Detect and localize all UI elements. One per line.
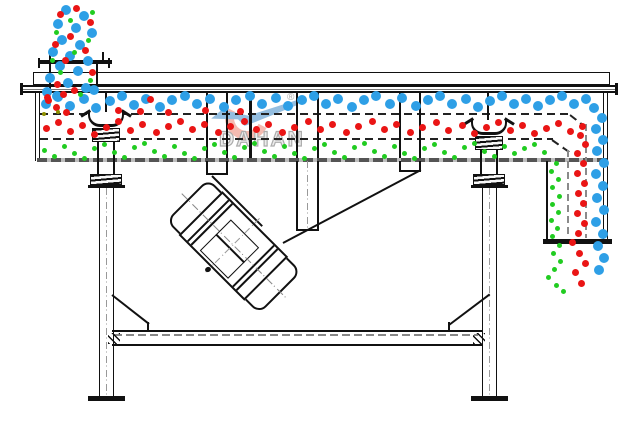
particle-red bbox=[241, 118, 248, 125]
particle-red bbox=[89, 69, 96, 76]
particle-green bbox=[172, 144, 177, 149]
particle-red bbox=[52, 41, 59, 48]
particle-green bbox=[322, 142, 327, 147]
particle-blue bbox=[283, 101, 293, 111]
particle-red bbox=[71, 87, 78, 94]
particle-red bbox=[575, 230, 582, 237]
particle-green bbox=[492, 154, 497, 159]
particle-green bbox=[402, 151, 407, 156]
particle-blue bbox=[205, 94, 215, 104]
particle-green bbox=[502, 144, 507, 149]
particle-blue bbox=[599, 253, 609, 263]
particle-red bbox=[63, 109, 70, 116]
particle-red bbox=[483, 124, 490, 131]
particle-blue bbox=[485, 96, 495, 106]
particle-red bbox=[407, 129, 414, 136]
particle-red bbox=[574, 170, 581, 177]
particle-red bbox=[115, 118, 122, 125]
particle-red bbox=[582, 260, 589, 267]
particle-blue bbox=[321, 99, 331, 109]
particle-green bbox=[58, 70, 63, 75]
particle-green bbox=[561, 289, 566, 294]
particle-green bbox=[422, 146, 427, 151]
particle-blue bbox=[117, 91, 127, 101]
particle-blue bbox=[167, 95, 177, 105]
particle-red bbox=[572, 269, 579, 276]
particle-green bbox=[542, 150, 547, 155]
particle-red bbox=[67, 128, 74, 135]
particle-green bbox=[122, 155, 127, 160]
particle-red bbox=[153, 129, 160, 136]
particle-red bbox=[581, 180, 588, 187]
particle-red bbox=[433, 119, 440, 126]
particle-blue bbox=[257, 99, 267, 109]
particle-red bbox=[45, 97, 52, 104]
particle-red bbox=[67, 33, 74, 40]
particle-green bbox=[552, 267, 557, 272]
particle-blue bbox=[105, 96, 115, 106]
particle-green bbox=[432, 142, 437, 147]
particle-olive bbox=[42, 112, 46, 116]
particle-green bbox=[482, 149, 487, 154]
particle-blue bbox=[83, 56, 93, 66]
particle-blue bbox=[87, 28, 97, 38]
particle-red bbox=[73, 5, 80, 12]
particle-blue bbox=[497, 91, 507, 101]
particle-green bbox=[78, 92, 83, 97]
vibrating-screen-diagram: ® DAHAN bbox=[0, 0, 638, 428]
particle-blue bbox=[71, 23, 81, 33]
particle-red bbox=[317, 126, 324, 133]
particle-blue bbox=[231, 95, 241, 105]
particle-red bbox=[147, 96, 154, 103]
particle-red bbox=[62, 57, 69, 64]
particle-blue bbox=[591, 124, 601, 134]
particle-green bbox=[212, 142, 217, 147]
particle-green bbox=[82, 156, 87, 161]
particle-green bbox=[554, 283, 559, 288]
particle-green bbox=[557, 194, 562, 199]
particle-green bbox=[242, 145, 247, 150]
particle-green bbox=[372, 149, 377, 154]
particle-green bbox=[342, 155, 347, 160]
particle-red bbox=[580, 200, 587, 207]
particle-green bbox=[472, 141, 477, 146]
particle-red bbox=[115, 107, 122, 114]
particle-blue bbox=[297, 95, 307, 105]
particle-green bbox=[550, 202, 555, 207]
particle-green bbox=[42, 148, 47, 153]
particle-blue bbox=[598, 229, 608, 239]
particle-green bbox=[262, 149, 267, 154]
particle-blue bbox=[333, 94, 343, 104]
particle-blue bbox=[447, 99, 457, 109]
particle-red bbox=[355, 123, 362, 130]
particle-blue bbox=[581, 94, 591, 104]
particle-green bbox=[50, 58, 55, 63]
particle-red bbox=[531, 130, 538, 137]
particle-blue bbox=[219, 102, 229, 112]
particle-red bbox=[445, 127, 452, 134]
particle-red bbox=[419, 124, 426, 131]
particle-blue bbox=[397, 93, 407, 103]
particle-red bbox=[279, 129, 286, 136]
particle-blue bbox=[598, 135, 608, 145]
particle-red bbox=[127, 127, 134, 134]
particle-red bbox=[459, 122, 466, 129]
particle-green bbox=[62, 144, 67, 149]
particle-blue bbox=[411, 101, 421, 111]
particle-blue bbox=[597, 113, 607, 123]
particle-green bbox=[302, 156, 307, 161]
particle-green bbox=[546, 275, 551, 280]
particle-red bbox=[91, 131, 98, 138]
particle-red bbox=[265, 121, 272, 128]
particle-layer bbox=[0, 0, 638, 428]
particle-red bbox=[393, 121, 400, 128]
particle-blue bbox=[155, 102, 165, 112]
particle-green bbox=[222, 150, 227, 155]
particle-red bbox=[202, 107, 209, 114]
particle-blue bbox=[461, 94, 471, 104]
particle-red bbox=[578, 280, 585, 287]
particle-red bbox=[579, 123, 586, 130]
particle-green bbox=[192, 156, 197, 161]
particle-green bbox=[88, 78, 93, 83]
particle-red bbox=[574, 210, 581, 217]
particle-red bbox=[60, 91, 67, 98]
particle-red bbox=[253, 126, 260, 133]
particle-red bbox=[137, 108, 144, 115]
particle-red bbox=[201, 121, 208, 128]
particle-green bbox=[362, 141, 367, 146]
particle-green bbox=[132, 145, 137, 150]
particle-blue bbox=[592, 146, 602, 156]
particle-blue bbox=[63, 78, 73, 88]
particle-green bbox=[556, 210, 561, 215]
particle-blue bbox=[423, 95, 433, 105]
particle-green bbox=[555, 226, 560, 231]
particle-green bbox=[152, 149, 157, 154]
particle-red bbox=[575, 190, 582, 197]
particle-red bbox=[165, 109, 172, 116]
particle-green bbox=[512, 151, 517, 156]
particle-red bbox=[291, 124, 298, 131]
particle-green bbox=[86, 38, 91, 43]
particle-blue bbox=[53, 19, 63, 29]
particle-green bbox=[52, 154, 57, 159]
particle-green bbox=[72, 50, 77, 55]
particle-blue bbox=[192, 99, 202, 109]
particle-red bbox=[471, 130, 478, 137]
particle-green bbox=[442, 150, 447, 155]
particle-red bbox=[576, 250, 583, 257]
particle-red bbox=[177, 118, 184, 125]
particle-red bbox=[580, 160, 587, 167]
particle-red bbox=[495, 119, 502, 126]
particle-blue bbox=[180, 91, 190, 101]
particle-blue bbox=[599, 205, 609, 215]
particle-green bbox=[232, 155, 237, 160]
particle-green bbox=[556, 177, 561, 182]
particle-green bbox=[142, 141, 147, 146]
particle-red bbox=[82, 47, 89, 54]
particle-red bbox=[555, 120, 562, 127]
particle-green bbox=[252, 141, 257, 146]
particle-olive bbox=[56, 110, 60, 114]
particle-green bbox=[202, 146, 207, 151]
particle-green bbox=[102, 142, 107, 147]
particle-green bbox=[92, 146, 97, 151]
particle-red bbox=[581, 220, 588, 227]
particle-blue bbox=[473, 102, 483, 112]
particle-green bbox=[162, 154, 167, 159]
particle-green bbox=[549, 218, 554, 223]
particle-blue bbox=[589, 103, 599, 113]
particle-blue bbox=[435, 91, 445, 101]
particle-green bbox=[554, 161, 559, 166]
particle-red bbox=[577, 132, 584, 139]
particle-red bbox=[569, 239, 576, 246]
particle-blue bbox=[533, 101, 543, 111]
particle-blue bbox=[371, 91, 381, 101]
particle-green bbox=[312, 146, 317, 151]
particle-green bbox=[550, 234, 555, 239]
particle-red bbox=[227, 123, 234, 130]
particle-blue bbox=[599, 158, 609, 168]
particle-green bbox=[392, 144, 397, 149]
particle-blue bbox=[593, 241, 603, 251]
particle-green bbox=[549, 169, 554, 174]
particle-green bbox=[68, 18, 73, 23]
particle-green bbox=[182, 151, 187, 156]
particle-green bbox=[90, 10, 95, 15]
particle-green bbox=[412, 156, 417, 161]
particle-blue bbox=[57, 35, 67, 45]
particle-blue bbox=[598, 181, 608, 191]
particle-green bbox=[352, 145, 357, 150]
particle-blue bbox=[45, 73, 55, 83]
particle-red bbox=[103, 124, 110, 131]
particle-red bbox=[237, 108, 244, 115]
particle-green bbox=[462, 145, 467, 150]
particle-green bbox=[532, 142, 537, 147]
particle-blue bbox=[91, 103, 101, 113]
particle-red bbox=[369, 118, 376, 125]
particle-red bbox=[381, 126, 388, 133]
particle-red bbox=[189, 126, 196, 133]
particle-blue bbox=[73, 66, 83, 76]
particle-blue bbox=[48, 47, 58, 57]
particle-green bbox=[112, 150, 117, 155]
particle-red bbox=[54, 81, 61, 88]
particle-blue bbox=[509, 99, 519, 109]
particle-green bbox=[522, 146, 527, 151]
particle-green bbox=[282, 144, 287, 149]
particle-red bbox=[165, 123, 172, 130]
particle-red bbox=[543, 125, 550, 132]
particle-green bbox=[292, 151, 297, 156]
particle-blue bbox=[271, 93, 281, 103]
particle-red bbox=[574, 150, 581, 157]
particle-blue bbox=[557, 91, 567, 101]
particle-blue bbox=[385, 99, 395, 109]
particle-green bbox=[54, 30, 59, 35]
particle-blue bbox=[591, 169, 601, 179]
particle-green bbox=[558, 259, 563, 264]
particle-red bbox=[215, 129, 222, 136]
particle-blue bbox=[592, 193, 602, 203]
particle-green bbox=[272, 154, 277, 159]
particle-red bbox=[582, 141, 589, 148]
particle-green bbox=[72, 151, 77, 156]
particle-blue bbox=[359, 95, 369, 105]
particle-red bbox=[567, 128, 574, 135]
particle-green bbox=[332, 150, 337, 155]
particle-green bbox=[551, 251, 556, 256]
particle-blue bbox=[245, 91, 255, 101]
particle-green bbox=[550, 185, 555, 190]
particle-blue bbox=[594, 265, 604, 275]
particle-blue bbox=[521, 94, 531, 104]
particle-red bbox=[305, 118, 312, 125]
particle-red bbox=[43, 125, 50, 132]
particle-green bbox=[382, 154, 387, 159]
particle-red bbox=[139, 121, 146, 128]
particle-red bbox=[57, 11, 64, 18]
particle-blue bbox=[89, 85, 99, 95]
particle-red bbox=[55, 119, 62, 126]
particle-red bbox=[519, 122, 526, 129]
particle-blue bbox=[569, 99, 579, 109]
particle-red bbox=[507, 127, 514, 134]
particle-blue bbox=[591, 217, 601, 227]
particle-green bbox=[557, 243, 562, 248]
particle-blue bbox=[545, 95, 555, 105]
particle-blue bbox=[309, 91, 319, 101]
particle-blue bbox=[347, 102, 357, 112]
particle-red bbox=[87, 19, 94, 26]
particle-red bbox=[79, 122, 86, 129]
particle-green bbox=[452, 155, 457, 160]
particle-red bbox=[343, 129, 350, 136]
particle-red bbox=[329, 121, 336, 128]
